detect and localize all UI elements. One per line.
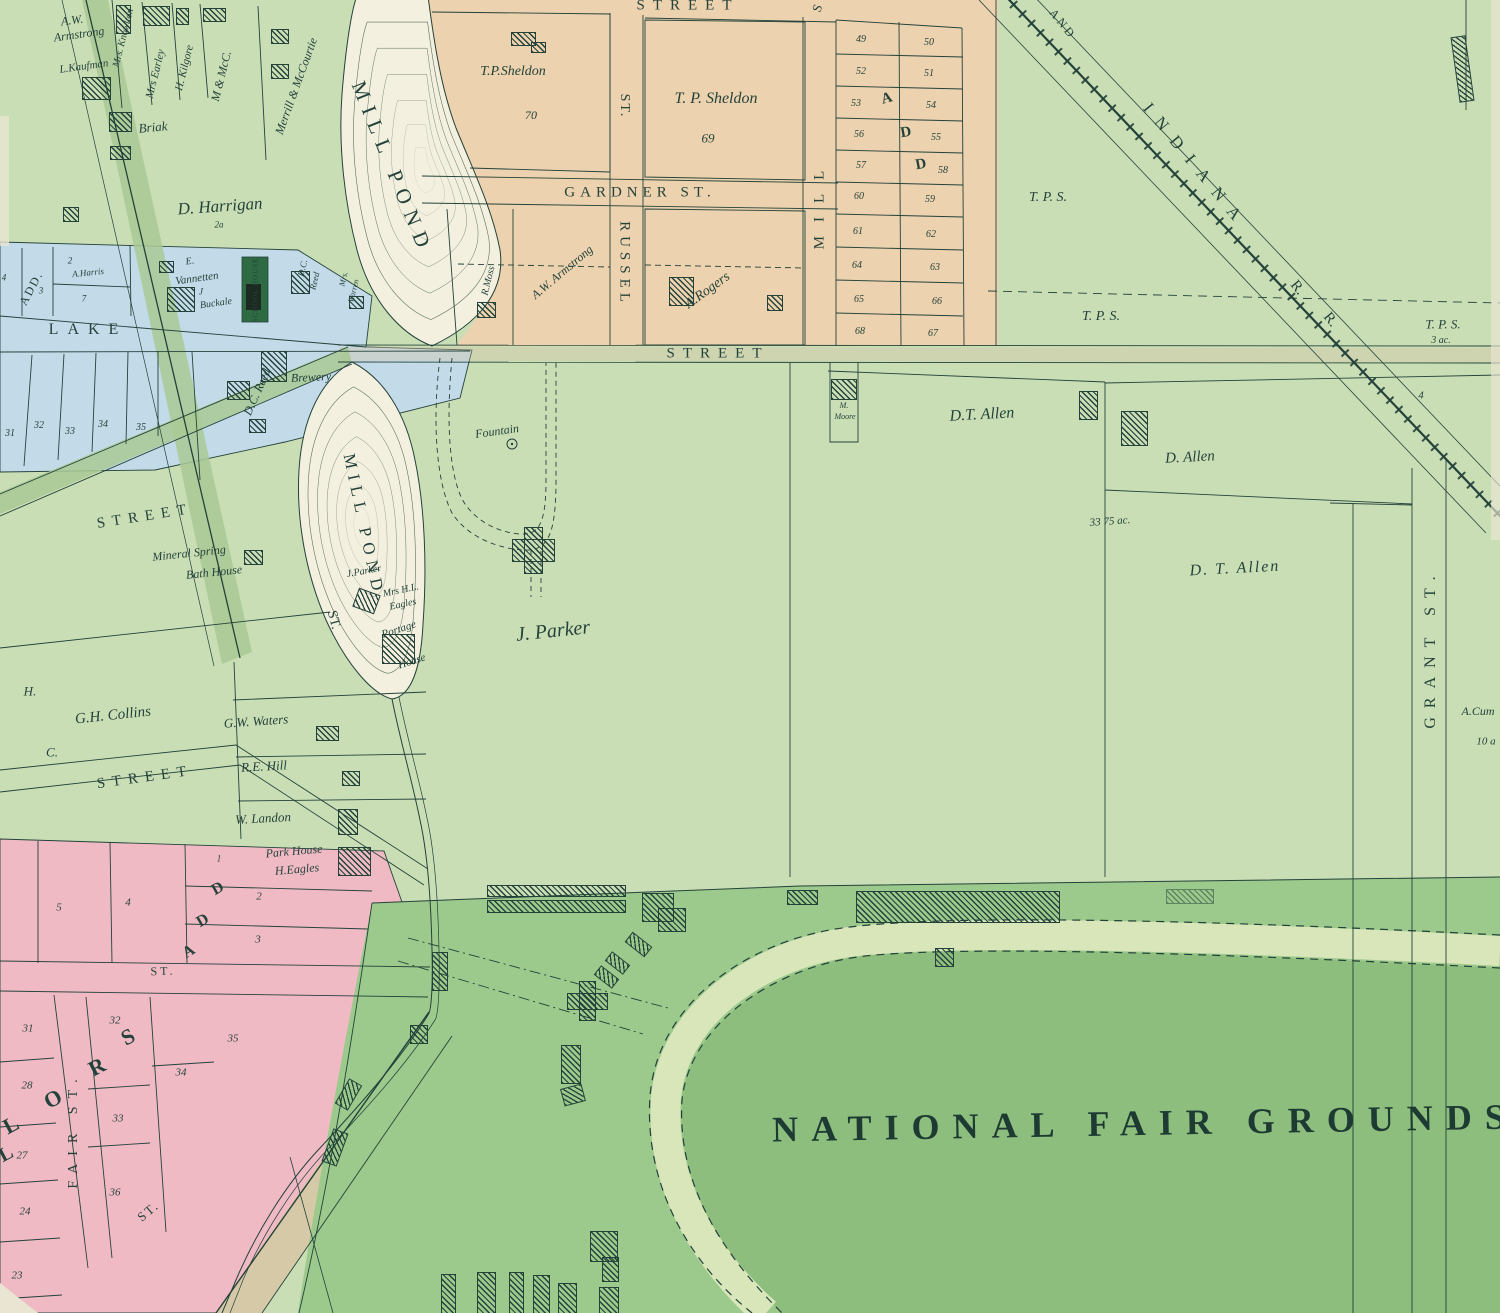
atlas-map: A.W.ArmstrongL.KaufmanMrs. KnowltonMrs E… (0, 0, 1500, 1313)
school-house-core (246, 284, 261, 310)
map-base-geometry (0, 0, 1500, 1313)
main-street-tint (340, 347, 1500, 362)
lower-mill-pond (298, 362, 424, 699)
orange-plat-region (428, 0, 998, 346)
railroad (979, 0, 1500, 533)
fountain-center-dot (511, 443, 513, 445)
track-infield (682, 951, 1500, 1313)
paper-edge-right (1491, 0, 1500, 540)
paper-edge-left (0, 116, 9, 246)
